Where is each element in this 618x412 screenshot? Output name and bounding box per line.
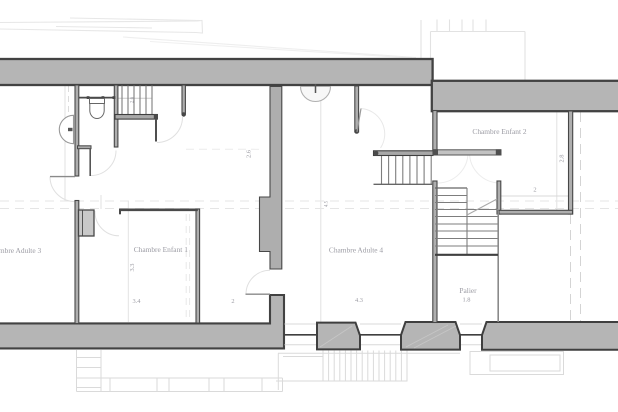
svg-text:2: 2 — [533, 187, 536, 194]
svg-text:1.8: 1.8 — [463, 297, 471, 304]
svg-text:Chambre Adulte 4: Chambre Adulte 4 — [329, 246, 383, 255]
svg-text:3.4: 3.4 — [133, 298, 142, 305]
svg-text:Palier: Palier — [459, 286, 477, 295]
svg-text:2: 2 — [231, 298, 234, 305]
svg-text:Chambre Enfant 2: Chambre Enfant 2 — [472, 127, 526, 136]
svg-text:4.3: 4.3 — [355, 297, 363, 304]
svg-text:3.3: 3.3 — [129, 264, 136, 272]
svg-text:2.6: 2.6 — [131, 96, 136, 103]
svg-text:Chambre Enfant 1: Chambre Enfant 1 — [134, 245, 188, 254]
svg-text:2.6: 2.6 — [246, 150, 253, 158]
svg-text:4.5: 4.5 — [325, 200, 330, 207]
svg-text:Chambre Adulte 3: Chambre Adulte 3 — [0, 246, 41, 255]
svg-text:2.8: 2.8 — [559, 155, 566, 163]
